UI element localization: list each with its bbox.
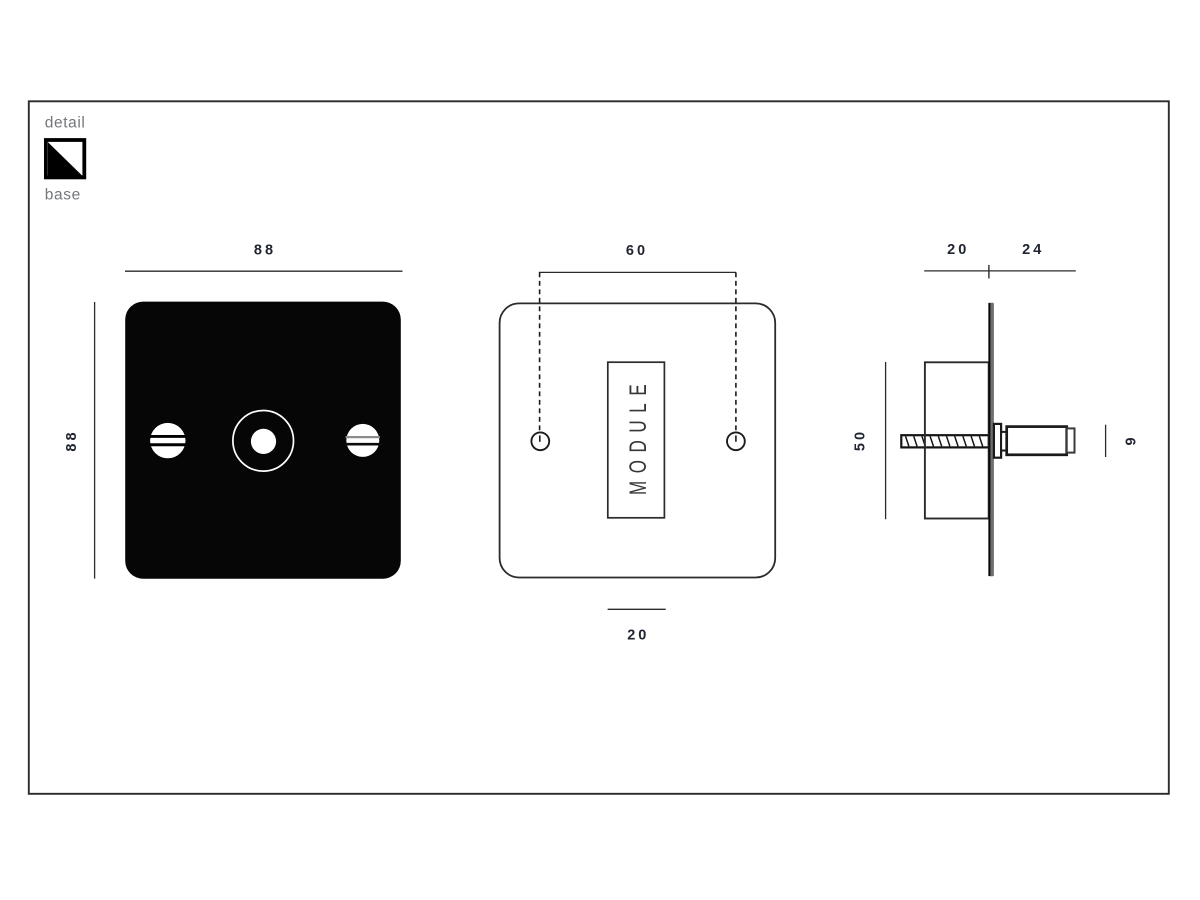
svg-text:base: base [45, 186, 81, 203]
svg-text:60: 60 [626, 243, 648, 259]
svg-text:88: 88 [254, 242, 276, 258]
svg-text:24: 24 [1022, 242, 1044, 258]
svg-text:9: 9 [1123, 434, 1139, 445]
svg-text:MODULE: MODULE [625, 377, 651, 495]
svg-text:50: 50 [853, 429, 869, 451]
svg-text:detail: detail [45, 114, 86, 131]
svg-text:20: 20 [627, 628, 649, 644]
svg-text:88: 88 [64, 429, 80, 451]
svg-text:20: 20 [947, 242, 969, 258]
